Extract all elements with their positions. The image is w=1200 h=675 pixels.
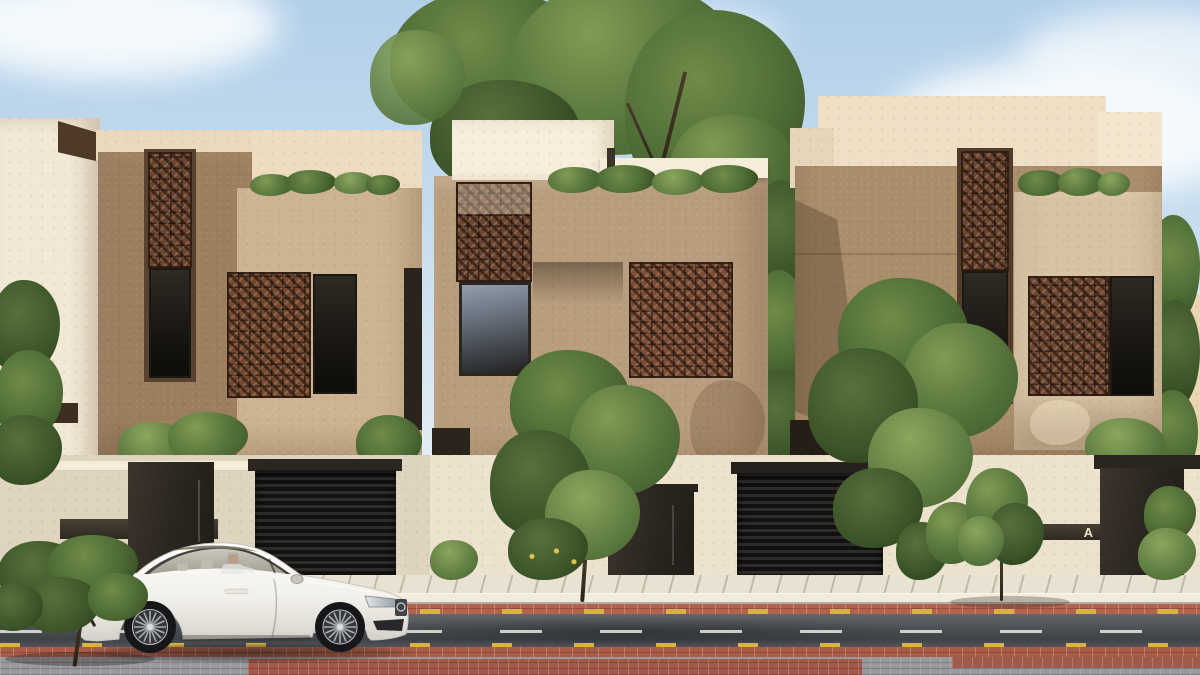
- roof-plants: [548, 165, 758, 195]
- door-lintel: [1094, 455, 1200, 469]
- foliage-blob: [700, 165, 758, 193]
- foliage-blob: [286, 170, 336, 194]
- tree-shadow-road: [950, 596, 1070, 608]
- window-dark: [313, 274, 357, 394]
- foliage-blob: [366, 175, 400, 195]
- foliage-blob: [1138, 528, 1196, 580]
- foliage-blob: [596, 165, 656, 193]
- window-tall: [149, 268, 191, 378]
- foliage-blob: [88, 573, 148, 621]
- foliage-blob: [0, 415, 62, 485]
- tree-shadow-road: [5, 652, 155, 666]
- mashrabiya-screen-vertical: [961, 151, 1009, 271]
- car-mirror: [291, 575, 303, 584]
- mashrabiya-screen-vertical: [148, 152, 192, 268]
- paver-band-red: [952, 657, 1200, 668]
- car-rocker-shadow: [181, 635, 311, 641]
- foliage-blob: [518, 542, 588, 578]
- flower-bush: [518, 542, 588, 578]
- mashrabiya-skyholes: [458, 184, 530, 214]
- roof-plants: [250, 170, 400, 196]
- shrub-cluster: [1138, 486, 1200, 582]
- scene: A B A: [0, 0, 1200, 675]
- foliage-blob: [652, 169, 704, 195]
- window-dark: [1110, 276, 1154, 396]
- foliage-blob: [548, 167, 602, 193]
- door-handle: [198, 480, 200, 542]
- bush-left-edge: [0, 280, 65, 485]
- unit-label-right: A: [1084, 525, 1094, 540]
- mashrabiya-screen-square: [1028, 276, 1110, 396]
- mashrabiya-screen-square: [227, 272, 311, 398]
- car-front-wheel: [315, 602, 365, 652]
- shrub-cluster: [430, 540, 478, 580]
- roof-plants: [1018, 168, 1130, 198]
- facade-recess: [404, 268, 422, 430]
- overhang-shadow: [533, 262, 623, 304]
- street-tree-sidewalk: [958, 468, 1044, 603]
- foliage-blob: [1098, 172, 1130, 196]
- car-door-handle: [225, 589, 248, 594]
- foliage-blob: [430, 540, 478, 580]
- car-front-intake: [373, 619, 404, 631]
